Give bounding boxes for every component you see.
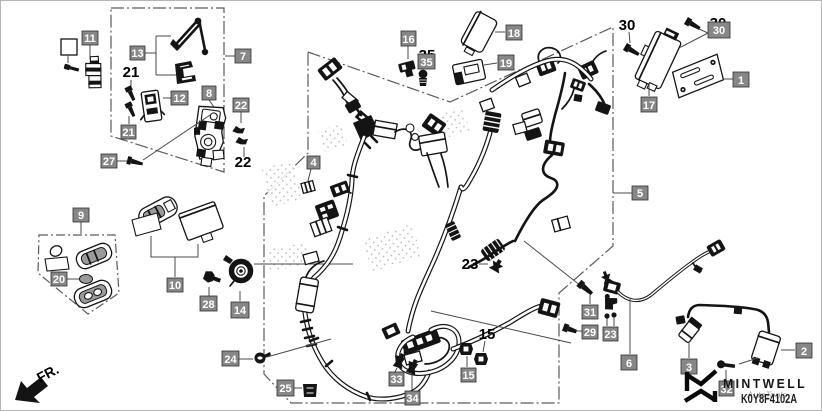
- svg-text:35: 35: [420, 57, 432, 69]
- svg-text:18: 18: [508, 28, 520, 40]
- svg-text:14: 14: [234, 305, 247, 317]
- svg-text:31: 31: [584, 307, 596, 319]
- svg-text:21: 21: [122, 127, 134, 139]
- svg-text:25: 25: [279, 383, 291, 395]
- svg-text:33: 33: [390, 374, 402, 386]
- svg-text:2: 2: [801, 346, 807, 358]
- svg-text:7: 7: [240, 51, 246, 63]
- svg-text:21: 21: [123, 64, 140, 81]
- svg-text:23: 23: [604, 329, 616, 341]
- svg-text:10: 10: [169, 280, 181, 292]
- svg-text:9: 9: [78, 210, 84, 222]
- svg-text:30: 30: [713, 25, 725, 37]
- svg-text:17: 17: [643, 100, 655, 112]
- svg-text:8: 8: [206, 88, 212, 100]
- svg-text:5: 5: [637, 188, 643, 200]
- svg-text:34: 34: [406, 393, 419, 405]
- svg-text:27: 27: [103, 156, 115, 168]
- svg-text:15: 15: [479, 326, 496, 343]
- svg-text:23: 23: [462, 256, 479, 273]
- svg-text:19: 19: [500, 58, 512, 70]
- svg-text:16: 16: [402, 34, 414, 46]
- svg-text:22: 22: [235, 154, 252, 171]
- svg-text:22: 22: [235, 100, 247, 112]
- svg-text:13: 13: [131, 48, 143, 60]
- svg-text:MINTWELL: MINTWELL: [723, 377, 807, 391]
- svg-text:20: 20: [53, 274, 65, 286]
- svg-text:28: 28: [202, 299, 214, 311]
- svg-text:29: 29: [584, 327, 596, 339]
- svg-text:24: 24: [224, 354, 237, 366]
- svg-text:30: 30: [619, 17, 636, 34]
- svg-text:12: 12: [173, 93, 185, 105]
- svg-text:6: 6: [626, 358, 632, 370]
- svg-text:1: 1: [738, 75, 744, 87]
- svg-text:15: 15: [462, 370, 474, 382]
- svg-text:K0Y8F4102A: K0Y8F4102A: [741, 392, 797, 406]
- svg-text:11: 11: [84, 33, 96, 45]
- svg-text:4: 4: [310, 157, 317, 169]
